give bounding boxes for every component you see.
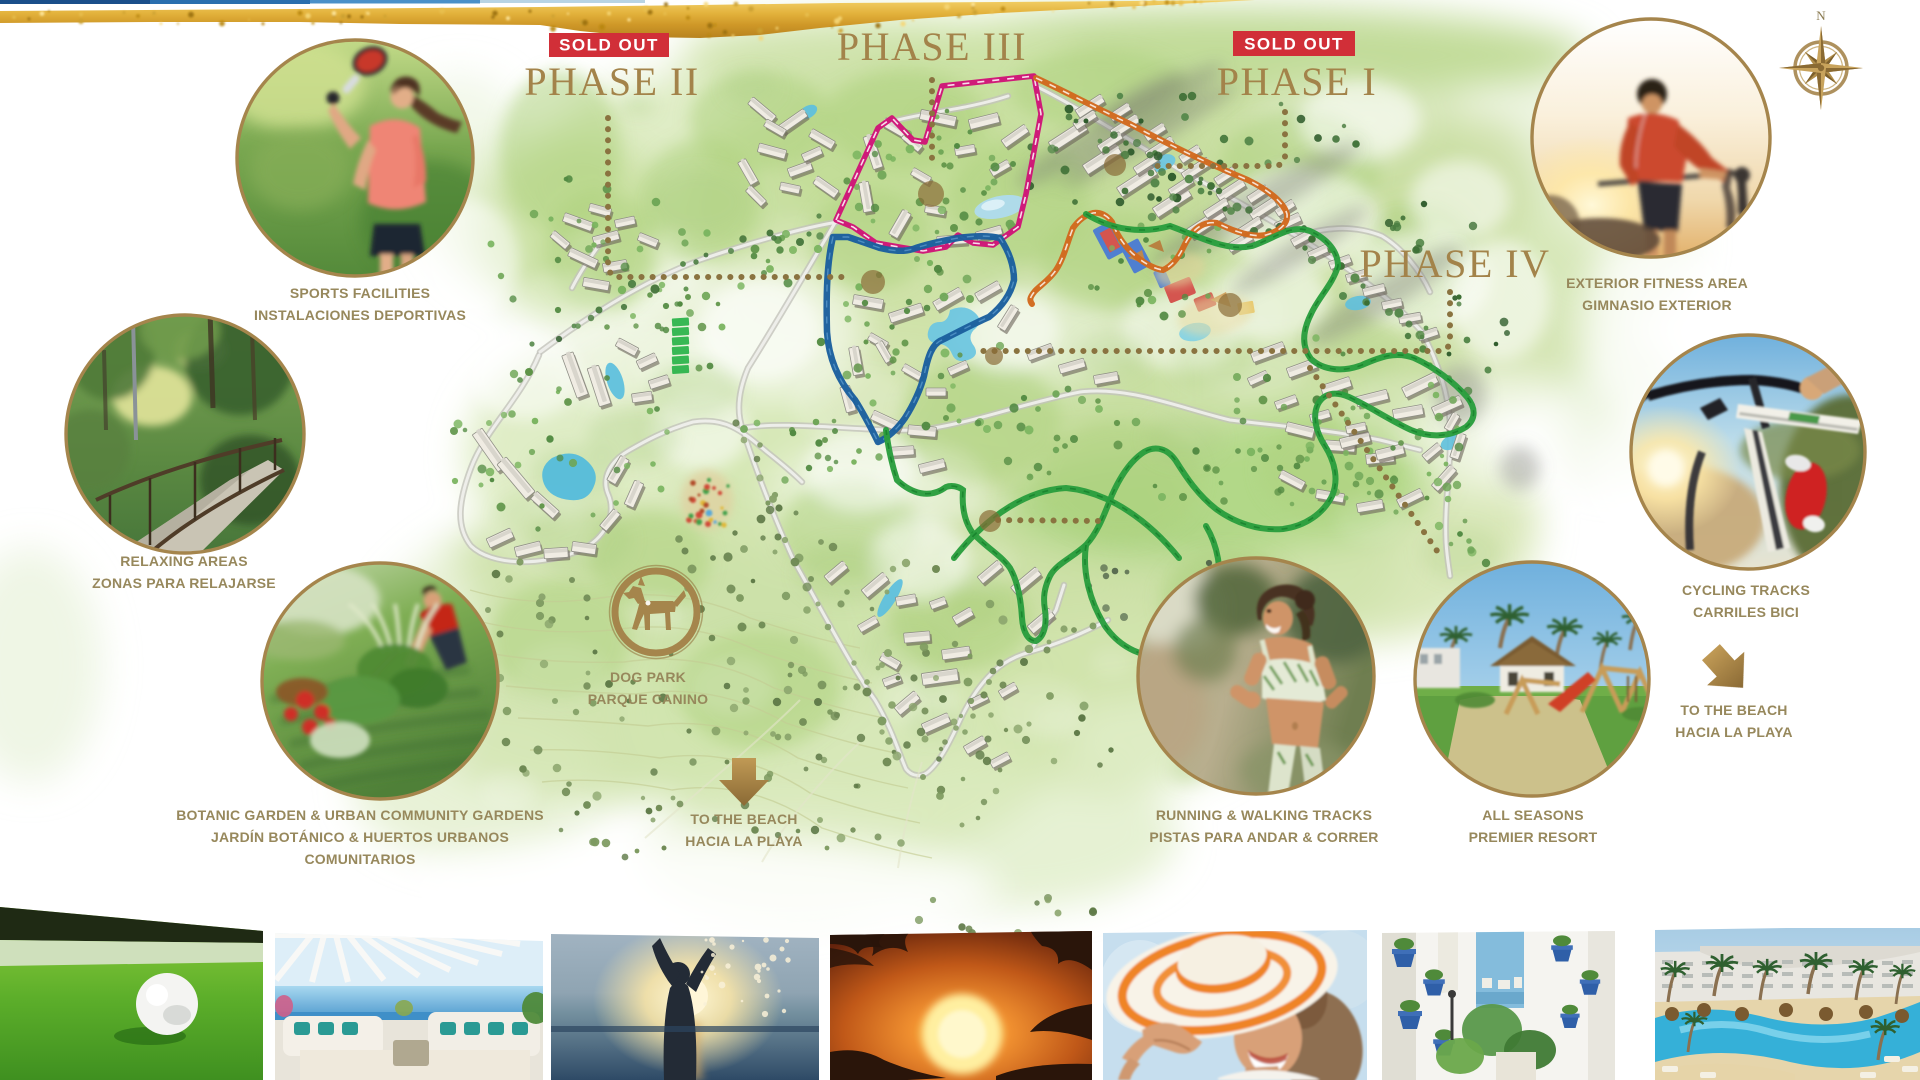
svg-text:SPORTS FACILITIES: SPORTS FACILITIES	[290, 285, 430, 301]
svg-text:GIMNASIO EXTERIOR: GIMNASIO EXTERIOR	[1582, 297, 1732, 313]
svg-text:JARDÍN BOTÁNICO & HUERTOS URBA: JARDÍN BOTÁNICO & HUERTOS URBANOS	[211, 829, 509, 845]
svg-text:BOTANIC GARDEN & URBAN COMMUNI: BOTANIC GARDEN & URBAN COMMUNITY GARDENS	[176, 807, 544, 823]
svg-text:SOLD OUT: SOLD OUT	[1244, 35, 1344, 54]
svg-text:PHASE III: PHASE III	[837, 24, 1027, 69]
svg-text:COMUNITARIOS: COMUNITARIOS	[304, 851, 415, 867]
svg-text:N: N	[1816, 8, 1826, 23]
svg-text:PREMIER RESORT: PREMIER RESORT	[1469, 829, 1598, 845]
svg-text:PARQUE CANINO: PARQUE CANINO	[588, 691, 709, 707]
svg-text:PISTAS PARA ANDAR & CORRER: PISTAS PARA ANDAR & CORRER	[1149, 829, 1378, 845]
svg-text:PHASE I: PHASE I	[1217, 59, 1378, 104]
svg-text:ALL SEASONS: ALL SEASONS	[1482, 807, 1584, 823]
svg-text:HACIA LA PLAYA: HACIA LA PLAYA	[685, 833, 802, 849]
svg-text:ZONAS PARA RELAJARSE: ZONAS PARA RELAJARSE	[92, 575, 276, 591]
svg-text:CYCLING TRACKS: CYCLING TRACKS	[1682, 582, 1810, 598]
svg-text:DOG PARK: DOG PARK	[610, 669, 686, 685]
svg-text:EXTERIOR FITNESS AREA: EXTERIOR FITNESS AREA	[1566, 275, 1748, 291]
svg-text:RUNNING & WALKING TRACKS: RUNNING & WALKING TRACKS	[1156, 807, 1372, 823]
svg-text:PHASE IV: PHASE IV	[1360, 241, 1551, 286]
svg-text:PHASE II: PHASE II	[524, 59, 699, 104]
svg-text:INSTALACIONES DEPORTIVAS: INSTALACIONES DEPORTIVAS	[254, 307, 466, 323]
svg-text:RELAXING AREAS: RELAXING AREAS	[120, 553, 248, 569]
svg-text:TO THE BEACH: TO THE BEACH	[1680, 702, 1787, 718]
svg-text:CARRILES BICI: CARRILES BICI	[1693, 604, 1799, 620]
svg-text:HACIA LA PLAYA: HACIA LA PLAYA	[1675, 724, 1792, 740]
svg-text:SOLD OUT: SOLD OUT	[559, 36, 659, 55]
svg-text:TO THE BEACH: TO THE BEACH	[690, 811, 797, 827]
